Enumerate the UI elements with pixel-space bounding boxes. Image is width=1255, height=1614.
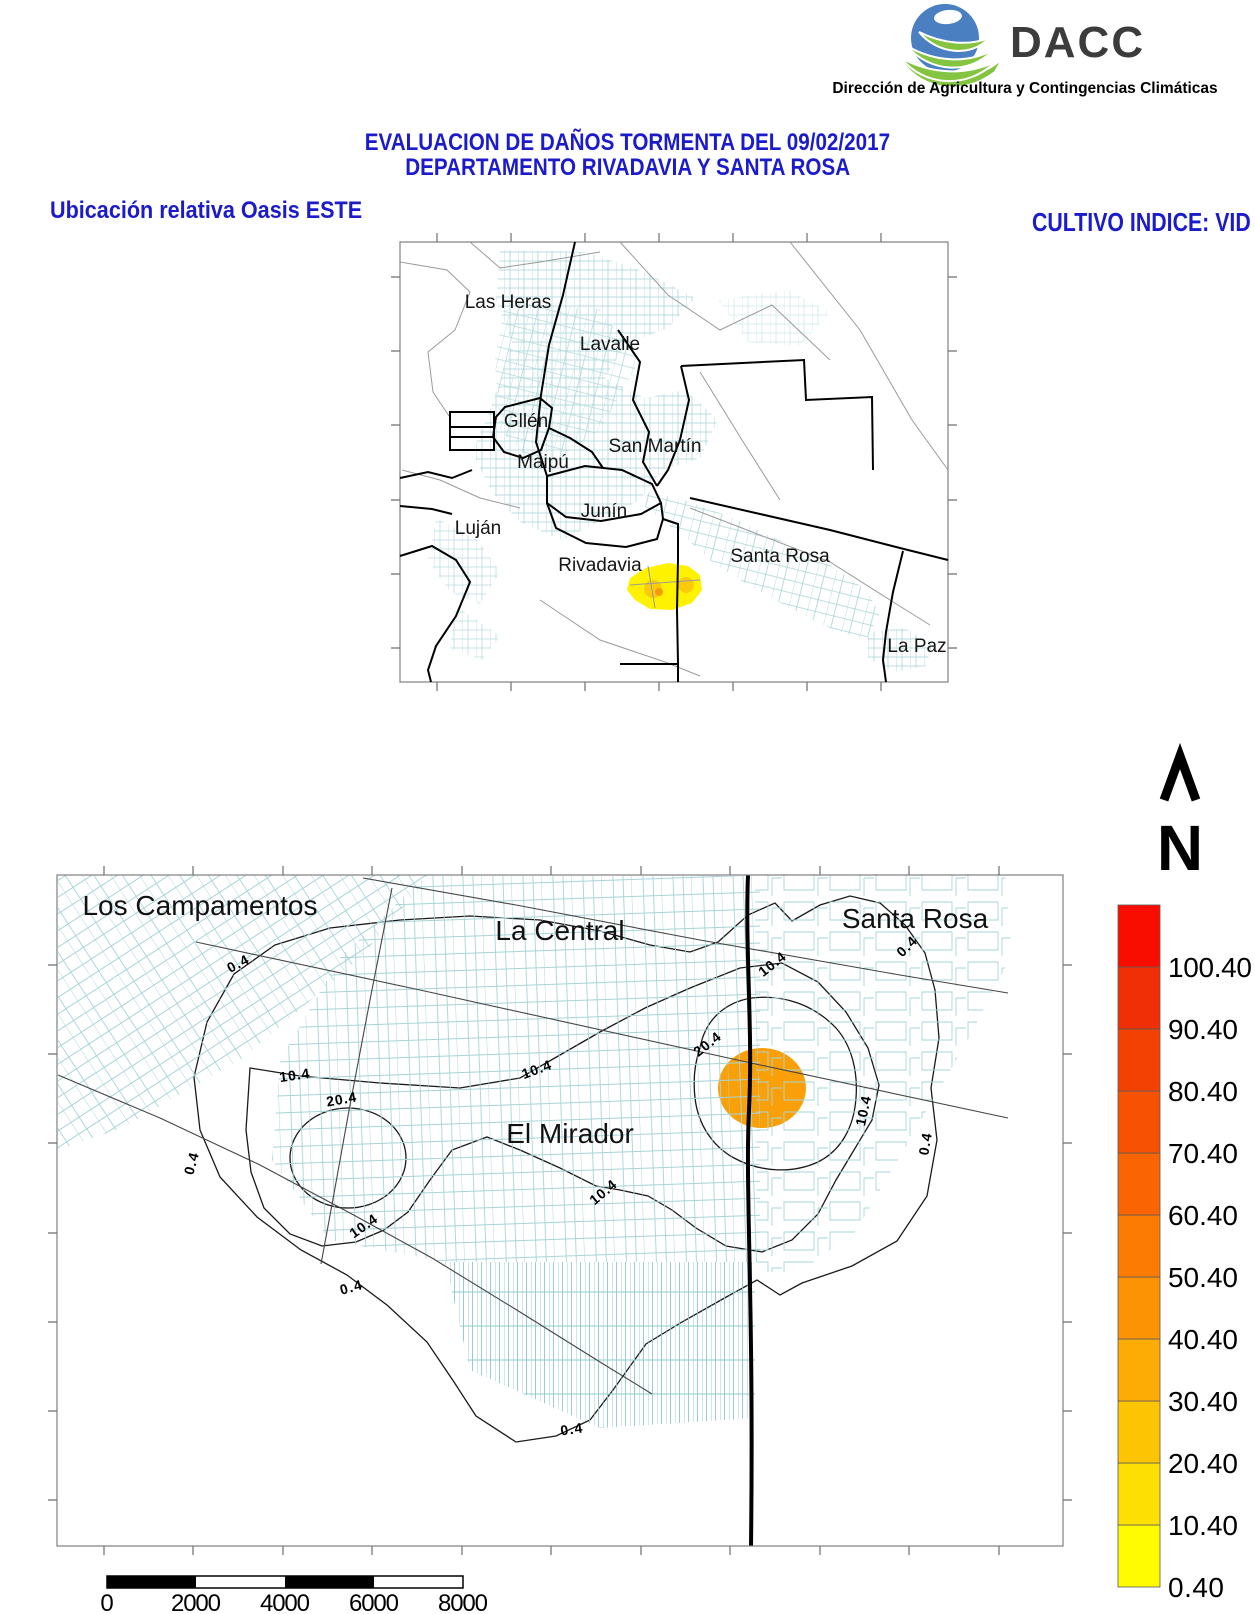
dept-label-lujan: Luján: [455, 518, 502, 539]
place-label-el-mirador: El Mirador: [506, 1118, 634, 1149]
scale-bar: 0 2000 4000 6000 8000: [100, 1576, 488, 1614]
dacc-logo-icon: DACC: [897, 4, 1145, 87]
title-block: EVALUACION DE DAÑOS TORMENTA DEL 09/02/2…: [0, 130, 1255, 180]
logo-subtitle: Dirección de Agricultura y Contingencias…: [800, 80, 1250, 98]
scale-bar-label: 2000: [171, 1590, 221, 1614]
legend-label: 100.40: [1168, 952, 1252, 983]
legend-label: 80.40: [1168, 1076, 1238, 1107]
legend-cell: [1118, 1215, 1160, 1277]
title-line2: DEPARTAMENTO RIVADAVIA Y SANTA ROSA: [405, 155, 850, 180]
legend-label: 30.40: [1168, 1386, 1238, 1417]
left-caption: Ubicación relativa Oasis ESTE: [50, 197, 362, 225]
legend-label: 70.40: [1168, 1138, 1238, 1169]
legend-label: 20.40: [1168, 1448, 1238, 1479]
legend-label: 60.40: [1168, 1200, 1238, 1231]
legend-cell: [1118, 1153, 1160, 1215]
north-arrow: N: [1157, 756, 1203, 884]
dept-label-lavalle: Lavalle: [580, 334, 640, 355]
dept-label-maipu: Maipú: [517, 452, 569, 473]
legend-cell: [1118, 1525, 1160, 1587]
scale-bar-label: 8000: [438, 1590, 488, 1614]
dept-label-santa-rosa: Santa Rosa: [730, 546, 830, 567]
legend-cell: [1118, 1463, 1160, 1525]
north-arrow-icon: [1164, 756, 1196, 800]
right-caption: CULTIVO INDICE: VID: [1032, 207, 1251, 238]
contour-label-0.4: 0.4: [559, 1420, 583, 1439]
place-label-la-central: La Central: [495, 915, 624, 946]
scale-bar-label: 4000: [260, 1590, 310, 1614]
legend-label: 90.40: [1168, 1014, 1238, 1045]
locator-map: Las Heras Lavalle Gllén Maipú San Martín…: [380, 228, 965, 693]
legend-cell: [1118, 1401, 1160, 1463]
legend-cell: [1118, 905, 1160, 967]
legend-label: 0.40: [1168, 1572, 1224, 1603]
legend-cell: [1118, 1277, 1160, 1339]
legend-color-scale: 0.40 10.40 20.40 30.40 40.40 50.40 60.40…: [1118, 905, 1252, 1603]
title-line1: EVALUACION DE DAÑOS TORMENTA DEL 09/02/2…: [365, 130, 890, 155]
scale-bar-label: 6000: [349, 1590, 399, 1614]
legend-cell: [1118, 1339, 1160, 1401]
legend-cell: [1118, 967, 1160, 1029]
legend-cell: [1118, 1029, 1160, 1091]
legend-cell: [1118, 1091, 1160, 1153]
damage-map: 0.4 0.4 0.4 0.4 0.4 0.4 10.4 10.4 10.4 1…: [40, 728, 1255, 1614]
logo-text: DACC: [1010, 18, 1145, 67]
place-label-santa-rosa: Santa Rosa: [842, 903, 989, 934]
dept-label-rivadavia: Rivadavia: [558, 555, 642, 576]
north-arrow-label: N: [1157, 812, 1203, 884]
locator-parcel-texture: [428, 250, 932, 672]
dept-label-la-paz: La Paz: [887, 636, 946, 657]
dept-label-junin: Junín: [581, 501, 627, 522]
dept-label-las-heras: Las Heras: [465, 292, 552, 313]
legend-label: 40.40: [1168, 1324, 1238, 1355]
legend-label: 10.40: [1168, 1510, 1238, 1541]
document-page: DACC Dirección de Agricultura y Continge…: [0, 0, 1255, 1614]
legend-label: 50.40: [1168, 1262, 1238, 1293]
dept-label-san-martin: San Martín: [609, 436, 702, 457]
place-label-los-campamentos: Los Campamentos: [82, 890, 317, 921]
dept-label-gllen: Gllén: [504, 411, 548, 432]
scale-bar-label: 0: [100, 1590, 113, 1614]
